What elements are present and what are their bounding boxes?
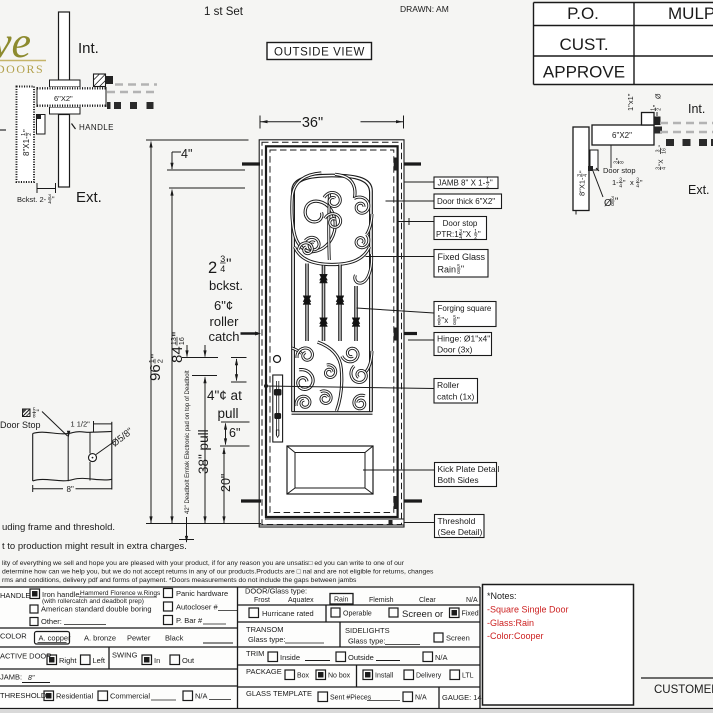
svg-text:Ext.: Ext. [76, 189, 102, 206]
svg-text:8: 8 [619, 161, 625, 164]
svg-text:JAMB 8" X 1-: JAMB 8" X 1- [438, 179, 486, 188]
svg-text:Int.: Int. [688, 102, 705, 116]
svg-text:APPROVE: APPROVE [543, 63, 625, 82]
svg-text:DOORS: DOORS [0, 62, 44, 76]
svg-text:Pewter: Pewter [127, 634, 151, 643]
svg-text:x: x [630, 178, 634, 187]
svg-text:American standard double borin: American standard double boring [41, 605, 152, 614]
svg-text:Frost: Frost [254, 597, 270, 604]
svg-text:Rain: Rain [438, 265, 457, 275]
svg-text:Sent #Pieces: Sent #Pieces [330, 695, 372, 702]
svg-text:Forging square: Forging square [438, 304, 492, 313]
svg-text:Ø: Ø [656, 93, 663, 99]
svg-text:CUSTOMER: CUSTOMER [654, 684, 713, 696]
svg-text:Fixed Glass: Fixed Glass [438, 252, 486, 262]
svg-text:": " [52, 195, 55, 204]
svg-text:-Square Single Door: -Square Single Door [487, 605, 569, 615]
svg-text:SIDELIGHTS: SIDELIGHTS [345, 626, 390, 635]
svg-text:PACKAGE: PACKAGE [246, 667, 282, 676]
svg-text:GLASS TEMPLATE: GLASS TEMPLATE [246, 689, 312, 698]
svg-text:": " [36, 408, 39, 417]
svg-text:Flemish: Flemish [369, 597, 394, 604]
svg-text:": " [457, 316, 460, 325]
svg-text:8: 8 [438, 321, 441, 327]
svg-text:3: 3 [220, 254, 225, 264]
svg-text:Left: Left [93, 656, 106, 665]
svg-text:"X: "X [658, 159, 665, 166]
svg-text:Clear: Clear [419, 597, 436, 604]
svg-text:": " [578, 170, 587, 173]
svg-text:6"X2": 6"X2" [54, 94, 73, 103]
svg-text:": " [478, 230, 481, 239]
svg-text:Glass type:: Glass type: [348, 637, 386, 646]
svg-text:": " [640, 178, 643, 187]
svg-text:4: 4 [220, 264, 225, 274]
svg-text:4: 4 [583, 174, 589, 177]
svg-text:4": 4" [181, 147, 192, 161]
svg-text:P. Bar #: P. Bar # [176, 616, 203, 625]
svg-text:Hammerd Florence w.Rings: Hammerd Florence w.Rings [80, 590, 161, 597]
svg-text:8": 8" [28, 675, 35, 682]
svg-text:": " [170, 331, 185, 336]
svg-text:Outside: Outside [348, 653, 374, 662]
svg-text:8: 8 [611, 202, 614, 208]
svg-text:Kick Plate Detail: Kick Plate Detail [438, 464, 500, 474]
svg-text:8"X1-: 8"X1- [22, 136, 31, 156]
svg-text:84: 84 [169, 346, 186, 363]
svg-text:rms and conditions, delivery p: rms and conditions, delivery pdf and for… [2, 577, 357, 584]
svg-text:roller: roller [210, 314, 240, 329]
svg-text:bckst.: bckst. [209, 278, 243, 293]
svg-text:Aquatex: Aquatex [288, 597, 314, 604]
svg-text:Door stop: Door stop [443, 219, 478, 228]
svg-text:Delivery: Delivery [416, 673, 442, 680]
svg-text:"X: "X [463, 230, 472, 239]
svg-text:4"¢ at: 4"¢ at [207, 388, 242, 403]
svg-text:No box: No box [328, 673, 351, 680]
svg-text:Roller: Roller [437, 380, 459, 390]
svg-text:ACTIVE DOOR: ACTIVE DOOR [0, 652, 52, 661]
svg-text:Screen: Screen [446, 634, 470, 643]
svg-text:P.O.: P.O. [567, 4, 599, 23]
svg-text:1 1/2": 1 1/2" [71, 420, 91, 429]
svg-text:uding frame and threshold.: uding frame and threshold. [2, 522, 115, 533]
svg-text:DOOR/Glass type:: DOOR/Glass type: [245, 587, 307, 596]
svg-text:4: 4 [662, 167, 668, 170]
svg-text:": " [623, 178, 626, 187]
svg-text:N/A: N/A [195, 692, 208, 701]
svg-text:Screen or: Screen or [402, 609, 443, 620]
svg-text:-Color:Cooper: -Color:Cooper [487, 631, 544, 641]
svg-text:N/A: N/A [415, 695, 427, 702]
svg-text:2: 2 [27, 133, 33, 136]
svg-text:Ext.: Ext. [688, 183, 710, 197]
svg-text:Autocloser #: Autocloser # [176, 603, 219, 612]
svg-text:PTR:1-: PTR:1- [436, 230, 462, 239]
svg-text:catch (1x): catch (1x) [437, 392, 474, 402]
svg-text:Operable: Operable [343, 611, 372, 618]
svg-text:Door (3x): Door (3x) [437, 345, 473, 355]
svg-text:ve: ve [0, 18, 31, 67]
svg-text:8: 8 [453, 321, 456, 327]
svg-text:1 st Set: 1 st Set [204, 6, 244, 18]
svg-text:Right: Right [59, 656, 77, 665]
svg-text:2: 2 [208, 259, 217, 277]
svg-text:1"x1": 1"x1" [626, 93, 635, 111]
svg-text:Out: Out [182, 656, 195, 665]
svg-text:16: 16 [662, 148, 668, 154]
svg-text:4: 4 [619, 183, 622, 189]
svg-text:A. bronze: A. bronze [84, 634, 116, 643]
svg-text:16: 16 [179, 337, 186, 345]
svg-text:t to production might result i: t to production might result in extra ch… [2, 541, 187, 552]
svg-text:Inside: Inside [280, 653, 300, 662]
svg-text:4: 4 [636, 183, 639, 189]
svg-text:36": 36" [302, 115, 323, 131]
svg-text:pull: pull [217, 406, 238, 421]
svg-text:In: In [154, 656, 160, 665]
svg-text:N/A: N/A [435, 653, 448, 662]
svg-text:": " [461, 264, 464, 274]
svg-text:JAMB:: JAMB: [0, 673, 22, 682]
svg-text:catch: catch [208, 329, 239, 344]
svg-text:N/A: N/A [466, 597, 478, 604]
svg-text:Install: Install [375, 673, 394, 680]
svg-text:96: 96 [147, 364, 164, 381]
svg-text:": " [22, 129, 31, 132]
svg-text:-Glass:Rain: -Glass:Rain [487, 618, 534, 628]
svg-text:Door stop: Door stop [603, 166, 636, 175]
svg-text:4: 4 [459, 235, 462, 241]
svg-text:THRESHOLD: THRESHOLD [0, 691, 47, 700]
svg-text:Fixed: Fixed [462, 611, 479, 618]
svg-text:1-: 1- [612, 178, 619, 187]
svg-text:4: 4 [48, 200, 51, 206]
svg-text:2: 2 [656, 108, 662, 111]
svg-text:8"X1-: 8"X1- [578, 177, 587, 196]
svg-text:A. copper: A. copper [39, 634, 72, 643]
svg-text:Bckst. 2-: Bckst. 2- [17, 195, 47, 204]
svg-text:determine how can we help you,: determine how can we help you, but we do… [2, 569, 434, 576]
svg-text:Panic hardware: Panic hardware [176, 589, 228, 598]
svg-text:": " [490, 178, 493, 187]
svg-text:TRANSOM: TRANSOM [246, 625, 284, 634]
svg-text:6"X2": 6"X2" [612, 131, 632, 140]
svg-text:6": 6" [229, 426, 240, 440]
svg-text:6"¢: 6"¢ [214, 298, 233, 313]
svg-text:20": 20" [219, 474, 233, 492]
svg-text:2: 2 [474, 235, 477, 241]
svg-text:HANDLE: HANDLE [79, 123, 114, 132]
svg-text:8": 8" [67, 485, 74, 494]
svg-text:GAUGE: 14: GAUGE: 14 [442, 693, 482, 702]
svg-text:": " [615, 197, 619, 208]
svg-text:Door Stop: Door Stop [0, 420, 41, 430]
svg-text:CUST.: CUST. [559, 35, 608, 54]
svg-text:8: 8 [33, 414, 36, 420]
svg-text:Black: Black [165, 634, 184, 643]
svg-text:8: 8 [457, 270, 460, 276]
svg-text:Residential: Residential [56, 692, 93, 701]
svg-text:": " [148, 353, 163, 358]
svg-text:Hurricane rated: Hurricane rated [262, 609, 314, 618]
svg-text:Other:: Other: [41, 617, 62, 626]
svg-text:MULPH: MULPH [668, 4, 713, 23]
svg-text:SWING: SWING [112, 651, 138, 660]
svg-text:2: 2 [156, 359, 165, 363]
svg-text:Door thick 6"X2": Door thick 6"X2" [437, 197, 495, 206]
svg-text:38" pull: 38" pull [196, 429, 211, 474]
svg-text:Both Sides: Both Sides [438, 475, 479, 485]
svg-text:COLOR: COLOR [0, 632, 27, 641]
svg-text:Int.: Int. [78, 40, 99, 57]
svg-text:Commercial: Commercial [110, 692, 150, 701]
svg-text:HANDLE: HANDLE [0, 591, 30, 600]
svg-text:Rain: Rain [334, 597, 349, 604]
svg-text:DRAWN: AM: DRAWN: AM [400, 4, 449, 14]
svg-text:Threshold: Threshold [438, 516, 476, 526]
svg-text:2: 2 [486, 184, 489, 190]
svg-text:Hinge: Ø1"x4": Hinge: Ø1"x4" [437, 334, 490, 344]
svg-text:"x: "x [441, 316, 448, 325]
svg-text:OUTSIDE VIEW: OUTSIDE VIEW [274, 47, 365, 59]
svg-text:TRIM: TRIM [246, 649, 264, 658]
svg-text:42" Deadbolt Emtek Electronic: 42" Deadbolt Emtek Electronic pad on top… [185, 370, 191, 514]
svg-text:*Notes:: *Notes: [487, 591, 517, 601]
svg-text:lity of everything we sell and: lity of everything we sell and hope you … [2, 560, 405, 567]
svg-text:Glass type:: Glass type: [248, 635, 286, 644]
svg-text:": " [226, 255, 231, 272]
svg-text:(See Detail): (See Detail) [438, 527, 483, 537]
svg-text:LTL: LTL [462, 673, 474, 680]
svg-text:Box: Box [297, 673, 310, 680]
